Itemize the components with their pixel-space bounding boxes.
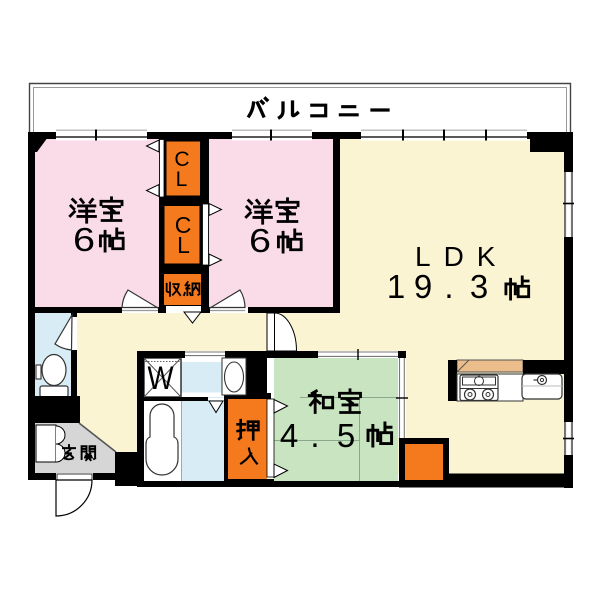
svg-text:4: 4 bbox=[280, 417, 298, 454]
svg-text:1: 1 bbox=[387, 268, 405, 305]
svg-text:6: 6 bbox=[249, 222, 271, 259]
svg-text:L: L bbox=[177, 232, 190, 258]
svg-text:L: L bbox=[176, 168, 188, 191]
svg-text:9: 9 bbox=[414, 268, 432, 305]
svg-text:3: 3 bbox=[470, 268, 488, 305]
svg-text:5: 5 bbox=[337, 417, 355, 454]
svg-text:6: 6 bbox=[73, 221, 95, 258]
svg-text:W: W bbox=[148, 360, 175, 396]
svg-text:.: . bbox=[310, 417, 319, 454]
svg-text:.: . bbox=[444, 268, 453, 305]
